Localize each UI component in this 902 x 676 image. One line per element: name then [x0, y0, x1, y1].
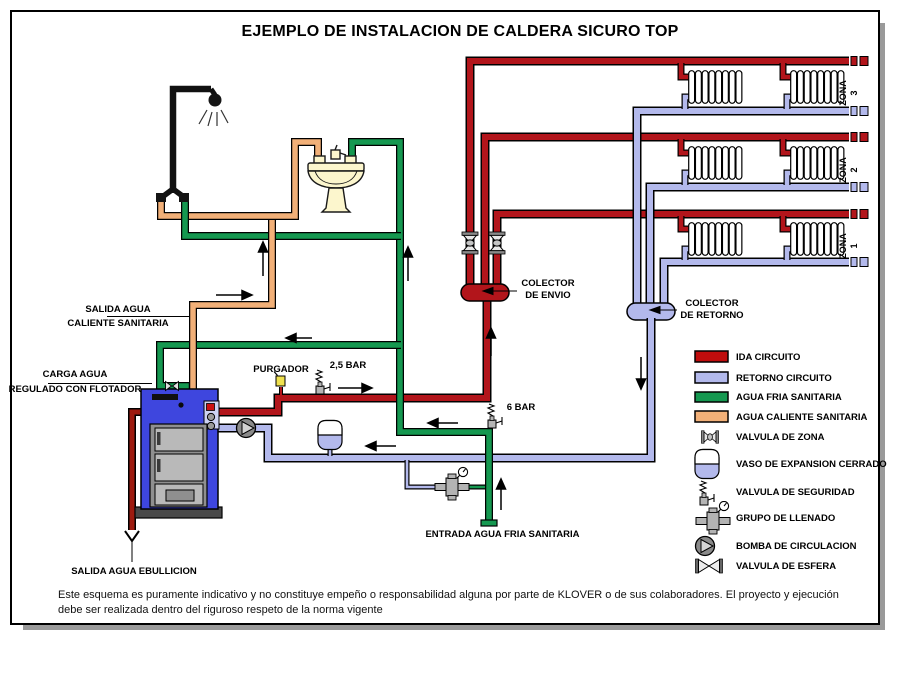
page: EJEMPLO DE INSTALACION DE CALDERA SICURO… [0, 0, 902, 676]
colector-retorno [627, 303, 675, 320]
pipes-retorno-circuit [637, 97, 868, 306]
expansion-vessel-icon [694, 448, 736, 480]
legend-row-valvula-zona: VALVULA DE ZONA [694, 428, 825, 446]
circulation-pump-icon [237, 419, 256, 438]
agua-caliente-swatch [694, 410, 736, 424]
label-25-bar: 2,5 BAR [326, 360, 370, 372]
label-salida-agua-caliente: SALIDA AGUA CALIENTE SANITARIA [52, 304, 184, 329]
radiator-icon [791, 147, 844, 180]
label-zona-1: ZONA1 [838, 228, 884, 264]
radiator-icon [689, 223, 742, 256]
filling-group-icon [694, 501, 736, 535]
boiler [135, 389, 222, 518]
label-entrada-agua-fria: ENTRADA AGUA FRIA SANITARIA [420, 529, 585, 541]
radiator-icon [689, 71, 742, 104]
purgador-icon [276, 376, 285, 386]
shower-head-icon [209, 94, 222, 107]
label-6-bar: 6 BAR [502, 402, 540, 414]
retorno-swatch [694, 371, 736, 385]
legend-row-vaso-expansion: VASO DE EXPANSION CERRADO [694, 448, 887, 480]
label-colector-envio: COLECTOR DE ENVIO [517, 278, 579, 301]
ida-swatch [694, 350, 736, 364]
label-zona-2: ZONA2 [838, 152, 884, 188]
legend-row-agua-caliente: AGUA CALIENTE SANITARIA [694, 410, 867, 424]
zone-valve-icon [694, 428, 736, 446]
pump-icon [694, 535, 736, 557]
zone-valve-icon [462, 232, 478, 254]
radiator-icon [791, 71, 844, 104]
ball-valve-icon [694, 558, 736, 574]
safety-valve-25bar-icon [316, 370, 330, 394]
legend-row-agua-fria: AGUA FRIA SANITARIA [694, 391, 842, 404]
pipes-agua-caliente [161, 142, 318, 392]
colector-envio [461, 284, 509, 301]
label-purgador: PURGADOR [250, 364, 312, 376]
legend-row-valvula-esfera: VALVULA DE ESFERA [694, 558, 836, 574]
legend-row-grupo-llenado: GRUPO DE LLENADO [694, 501, 835, 535]
radiator-icon [791, 223, 844, 256]
radiator-icon [689, 147, 742, 180]
expansion-vessel-icon [318, 421, 342, 450]
legend-row-bomba: BOMBA DE CIRCULACION [694, 535, 857, 557]
label-salida-ebullicion: SALIDA AGUA EBULLICION [64, 566, 204, 578]
disclaimer-line-2: debe ser realizada dentro del riguroso r… [58, 604, 383, 616]
legend-row-ida: IDA CIRCUITO [694, 350, 800, 364]
shower [156, 89, 228, 202]
safety-valve-6bar-icon [488, 404, 502, 428]
disclaimer-line-1: Este esquema es puramente indicativo y n… [58, 589, 839, 601]
filling-group-icon [435, 467, 469, 500]
radiators [689, 71, 844, 256]
label-colector-retorno: COLECTOR DE RETORNO [674, 298, 750, 321]
zone-valve-icon [489, 232, 505, 254]
agua-fria-swatch [694, 391, 736, 404]
legend-row-retorno: RETORNO CIRCUITO [694, 371, 832, 385]
label-carga-agua: CARGA AGUA REGULADO CON FLOTADOR [5, 369, 145, 395]
label-zona-3: ZONA3 [838, 75, 884, 111]
